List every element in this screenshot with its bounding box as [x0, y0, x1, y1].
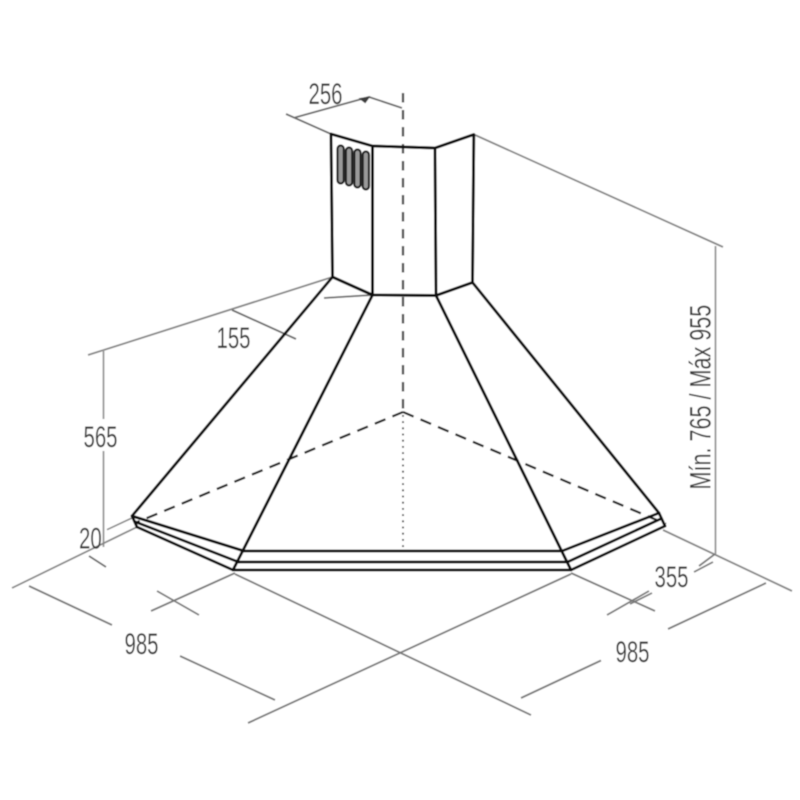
svg-text:256: 256: [309, 78, 343, 111]
svg-text:985: 985: [616, 636, 650, 669]
svg-text:155: 155: [217, 322, 251, 355]
svg-text:565: 565: [84, 421, 118, 454]
svg-text:355: 355: [655, 561, 689, 594]
svg-text:985: 985: [125, 628, 159, 661]
svg-text:Mín. 765 / Máx 955: Mín. 765 / Máx 955: [683, 305, 717, 490]
svg-text:20: 20: [79, 523, 102, 556]
